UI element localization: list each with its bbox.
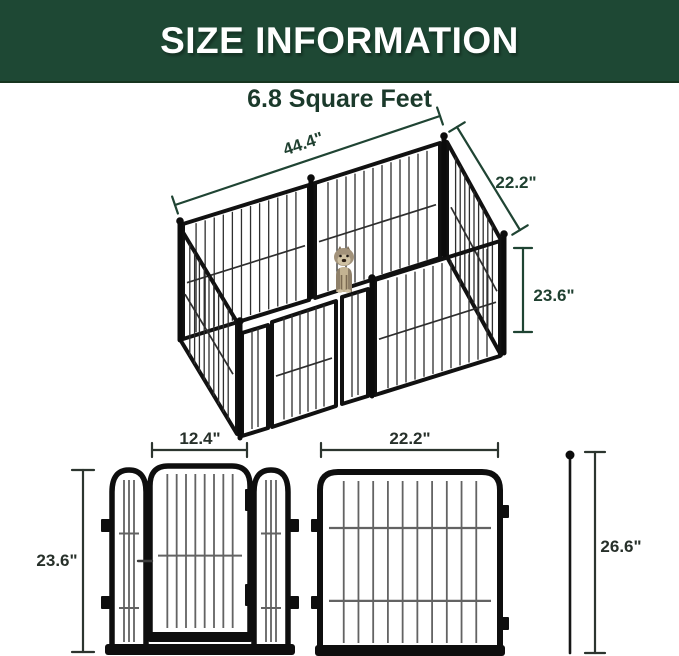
- pen-door: [272, 301, 336, 427]
- pen-left-panel: [181, 229, 237, 434]
- door-panel-view: 12.4" 23.6": [36, 429, 299, 655]
- ground-stake-view: 26.6": [566, 451, 642, 654]
- door-width-label: 12.4": [179, 429, 220, 448]
- size-information-infographic: SIZE INFORMATION 6.8 Square Feet: [0, 0, 679, 656]
- pen-back-right-panel: [315, 143, 440, 298]
- door-panel-height-label: 23.6": [36, 551, 77, 570]
- wire-panel-bottom-bar: [315, 645, 505, 656]
- pen-height-dimension: 23.6": [514, 248, 575, 332]
- pen-height-label: 23.6": [533, 286, 574, 305]
- door-panel-right-section: [254, 470, 288, 646]
- stake-ball-top: [566, 451, 575, 460]
- pen-door-side-section-left: [242, 325, 268, 436]
- pen-depth-dimension: 22.2": [449, 122, 536, 234]
- wire-panel-connector-tabs: [311, 505, 509, 630]
- door-panel-left-section: [112, 470, 146, 646]
- stake-height-dimension: 26.6": [585, 452, 642, 653]
- door-panel-height-dimension: 23.6": [36, 470, 94, 652]
- door-panel-door: [148, 466, 252, 642]
- wire-panel-grid: [320, 472, 500, 648]
- wire-panel-view: 22.2": [311, 429, 509, 656]
- door-width-dimension: 12.4": [152, 429, 247, 457]
- pen-length-label: 44.4": [281, 128, 326, 159]
- isometric-pen: 44.4" 22.2" 23.6": [172, 108, 574, 439]
- size-diagram: 44.4" 22.2" 23.6": [0, 0, 679, 656]
- pen-door-side-section-right: [342, 289, 368, 404]
- wire-panel-width-label: 22.2": [389, 429, 430, 448]
- door-panel-bottom-bar: [105, 644, 295, 655]
- stake-height-label: 26.6": [600, 537, 641, 556]
- wire-panel-width-dimension: 22.2": [321, 429, 498, 457]
- pen-depth-label: 22.2": [495, 173, 536, 192]
